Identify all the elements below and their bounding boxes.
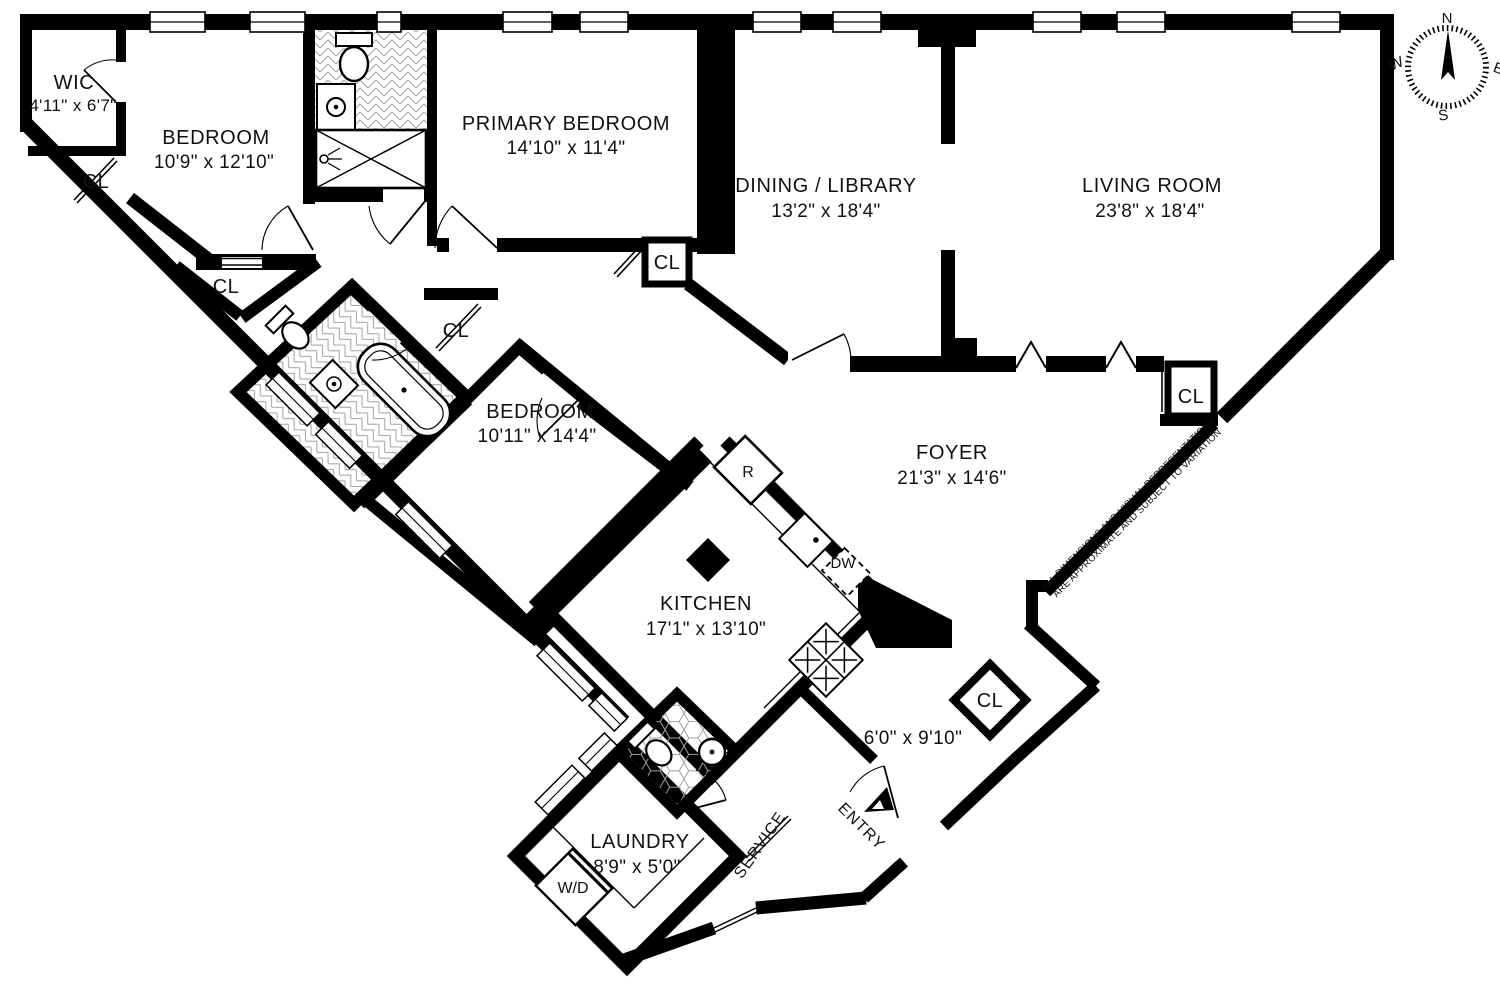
bedroom-mid-label: BEDROOM (486, 401, 594, 423)
bedroom-top-label: BEDROOM (162, 127, 270, 149)
bedroom-mid-dims: 10'11" x 14'4" (478, 426, 597, 447)
sink-laundry-bathroom-icon (699, 739, 725, 765)
compass-south: S (1437, 106, 1449, 124)
closet-label-entry: CL (977, 690, 1004, 712)
wic-label: WIC (54, 72, 95, 94)
entry-hall-dims: 6'0" x 9'10" (864, 728, 962, 749)
bathroom-top (315, 30, 427, 188)
floorplan-svg: WIC 4'11" x 6'7" BEDROOM 10'9" x 12'10" … (0, 0, 1500, 999)
living-room-dims: 23'8" x 18'4" (1095, 201, 1204, 222)
compass-east: E (1491, 59, 1500, 78)
toilet-top-bathroom-icon (336, 33, 372, 81)
foyer-dims: 21'3" x 14'6" (897, 468, 1006, 489)
living-door-swing-right (1106, 342, 1136, 368)
living-room-label: LIVING ROOM (1082, 175, 1222, 197)
refrigerator-label: R (742, 464, 754, 481)
floorplan-page: WIC 4'11" x 6'7" BEDROOM 10'9" x 12'10" … (0, 0, 1500, 999)
kitchen-dims: 17'1" x 13'10" (646, 619, 766, 640)
shower-icon (316, 130, 426, 188)
entry-arrow-icon (864, 787, 894, 812)
closet-living-door (1162, 372, 1166, 412)
service-entrance-door (714, 908, 757, 932)
living-door-swing-left (1016, 342, 1046, 368)
kitchen-label: KITCHEN (660, 593, 752, 615)
sink-top-bathroom-icon (317, 84, 355, 130)
compass-icon: N W E S (1387, 10, 1500, 125)
disclaimer-line2: ARE APPROXIMATE AND SUBJECT TO VARIATION (1051, 427, 1224, 600)
foyer-label: FOYER (916, 442, 988, 464)
closet-label-bedroom-top: CL (213, 276, 240, 298)
compass-north: N (1442, 10, 1453, 27)
dining-library-label: DINING / LIBRARY (735, 175, 917, 197)
bathroom-top-door-leaf (390, 200, 426, 244)
bedroom-top-door-leaf (288, 206, 313, 250)
wic-dims: 4'11" x 6'7" (29, 96, 116, 115)
disclaimer-line1: ALL DIMENSIONS AND VISUAL REPRESENTATION… (1039, 415, 1217, 593)
washer-dryer-label: W/D (557, 880, 588, 897)
laundry-dims: 8'9" x 5'0" (593, 857, 680, 878)
closet-label-living: CL (1178, 386, 1205, 408)
closet-label-hall: CL (443, 320, 470, 342)
closet-label-wic: CL (83, 171, 110, 193)
service-label: SERVICE (731, 809, 789, 882)
primary-door-leaf (452, 206, 497, 248)
dining-library-dims: 13'2" x 18'4" (771, 201, 880, 222)
laundry-label: LAUNDRY (590, 831, 689, 853)
primary-bedroom-label: PRIMARY BEDROOM (462, 113, 670, 135)
dishwasher-label: DW (831, 555, 857, 572)
dining-door-opening (788, 350, 850, 376)
bedroom-top-dims: 10'9" x 12'10" (154, 152, 274, 173)
closet-label-primary: CL (654, 252, 681, 274)
primary-bedroom-dims: 14'10" x 11'4" (507, 138, 626, 159)
compass-needle (1441, 30, 1455, 80)
